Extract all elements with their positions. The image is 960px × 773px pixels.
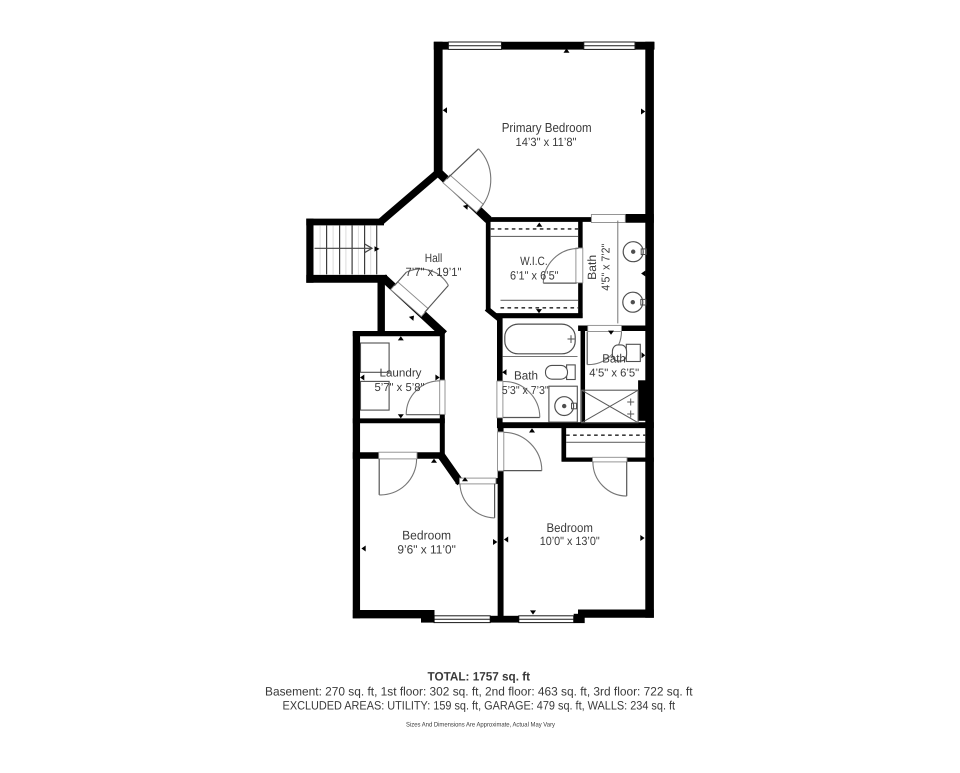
svg-text:EXCLUDED AREAS: UTILITY: 159 s: EXCLUDED AREAS: UTILITY: 159 sq. ft, GAR…: [283, 699, 676, 713]
svg-text:Bath: Bath: [585, 255, 599, 280]
svg-text:Basement: 270 sq. ft, 1st floo: Basement: 270 sq. ft, 1st floor: 302 sq.…: [265, 685, 693, 699]
svg-text:Laundry: Laundry: [380, 368, 422, 380]
svg-text:5’3" x 7’3": 5’3" x 7’3": [502, 385, 549, 397]
svg-text:4’5" x 7’2": 4’5" x 7’2": [601, 244, 613, 291]
svg-text:Primary Bedroom: Primary Bedroom: [502, 120, 592, 135]
svg-text:10’0" x 13’0": 10’0" x 13’0": [540, 534, 600, 548]
svg-text:Sizes And Dimensions Are Appro: Sizes And Dimensions Are Approximate, Ac…: [406, 721, 556, 728]
svg-text:9’6" x 11’0": 9’6" x 11’0": [397, 543, 456, 557]
svg-text:TOTAL: 1757 sq. ft: TOTAL: 1757 sq. ft: [428, 670, 531, 684]
svg-text:14’3" x 11’8": 14’3" x 11’8": [516, 135, 577, 149]
svg-text:7’7" x 19’1": 7’7" x 19’1": [406, 265, 462, 279]
svg-text:Hall: Hall: [425, 251, 443, 265]
svg-text:5’7" x 5’8": 5’7" x 5’8": [375, 382, 425, 394]
svg-text:W.I.C.: W.I.C.: [520, 254, 548, 268]
svg-text:6’1" x 6’5": 6’1" x 6’5": [510, 268, 559, 282]
svg-text:Bedroom: Bedroom: [402, 528, 451, 542]
svg-text:Bath: Bath: [514, 368, 538, 382]
svg-text:Bath: Bath: [602, 351, 626, 365]
svg-text:4’5" x 6’5": 4’5" x 6’5": [589, 368, 639, 380]
